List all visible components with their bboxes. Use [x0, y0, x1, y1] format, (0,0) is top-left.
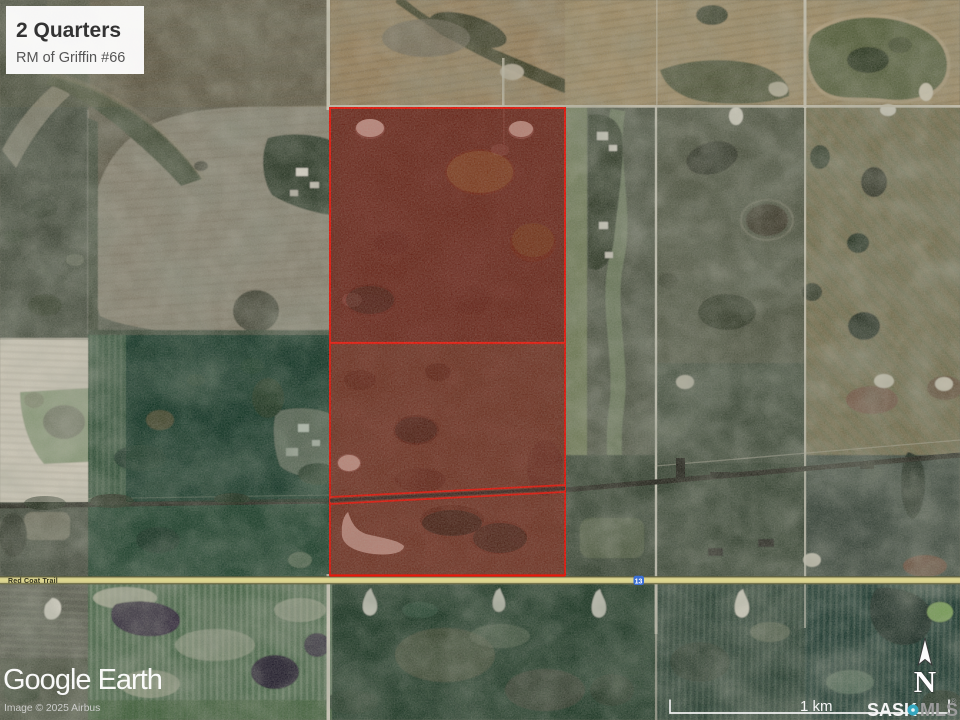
- svg-text:1 km: 1 km: [800, 698, 833, 715]
- svg-text:Red Coat Trail: Red Coat Trail: [8, 578, 58, 585]
- svg-text:RM of Griffin #66: RM of Griffin #66: [16, 50, 125, 66]
- svg-text:Image © 2025 Airbus: Image © 2025 Airbus: [4, 703, 100, 714]
- svg-text:2 Quarters: 2 Quarters: [16, 19, 121, 42]
- svg-text:13: 13: [635, 579, 643, 586]
- svg-text:N: N: [914, 664, 936, 699]
- svg-text:®: ®: [951, 697, 957, 706]
- svg-text:Google Earth: Google Earth: [3, 664, 162, 696]
